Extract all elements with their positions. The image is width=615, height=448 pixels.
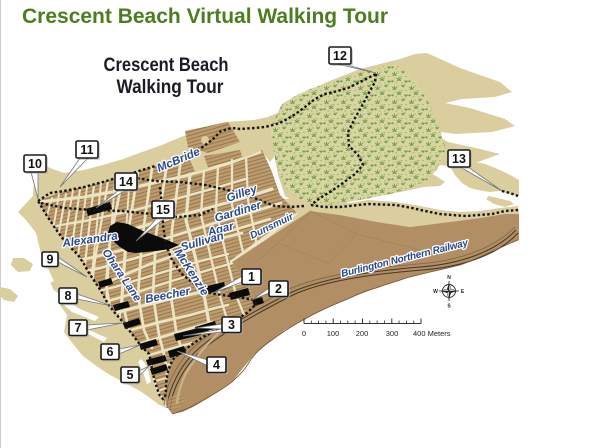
svg-text:8: 8 (65, 289, 72, 303)
svg-text:400 Meters: 400 Meters (413, 329, 451, 338)
svg-text:3: 3 (228, 318, 235, 332)
svg-text:1: 1 (248, 270, 255, 284)
svg-text:4: 4 (213, 358, 220, 372)
svg-text:9: 9 (47, 253, 54, 267)
svg-text:12: 12 (333, 49, 347, 63)
svg-text:15: 15 (156, 203, 170, 217)
svg-text:0: 0 (302, 329, 306, 338)
svg-text:N: N (447, 275, 451, 281)
svg-text:200: 200 (356, 329, 369, 338)
svg-text:10: 10 (28, 157, 42, 171)
svg-text:Walking Tour: Walking Tour (117, 76, 224, 98)
svg-text:5: 5 (127, 368, 134, 382)
svg-text:Crescent Beach Virtual Walking: Crescent Beach Virtual Walking Tour (22, 5, 388, 28)
svg-text:W: W (433, 289, 438, 295)
svg-text:100: 100 (327, 329, 340, 338)
svg-text:7: 7 (75, 321, 82, 335)
svg-text:2: 2 (275, 282, 282, 296)
svg-text:11: 11 (80, 143, 93, 157)
svg-text:13: 13 (452, 152, 466, 166)
svg-text:14: 14 (119, 175, 133, 189)
svg-text:6: 6 (107, 345, 114, 359)
svg-text:Crescent Beach: Crescent Beach (104, 54, 229, 76)
svg-text:300: 300 (386, 329, 399, 338)
